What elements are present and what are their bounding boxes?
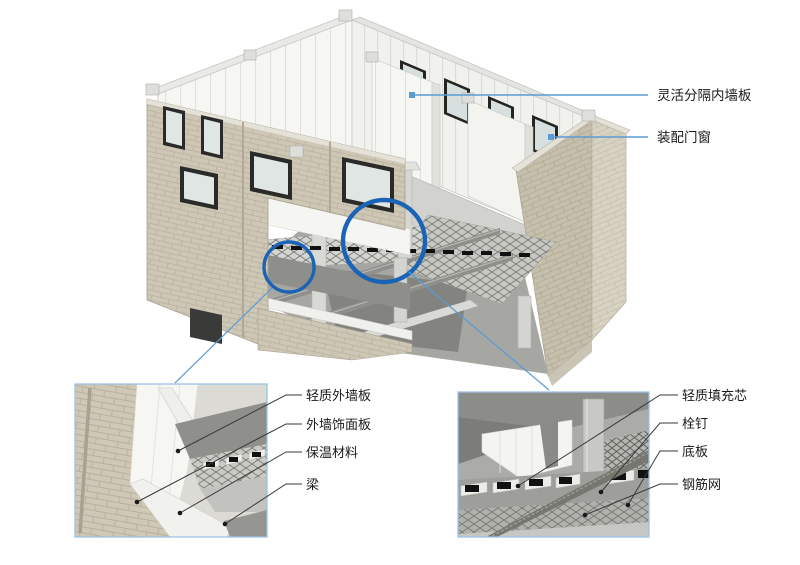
right-detail-view bbox=[458, 392, 649, 537]
label-steel-mesh: 钢筋网 bbox=[682, 477, 721, 492]
left-detail-view bbox=[75, 384, 267, 537]
label-shear-stud: 栓钉 bbox=[682, 416, 708, 431]
label-insulation-material: 保温材料 bbox=[306, 445, 358, 460]
label-assembled-doors-windows: 装配门窗 bbox=[657, 130, 711, 145]
label-beam: 梁 bbox=[306, 477, 319, 492]
facade-window bbox=[201, 115, 223, 159]
label-lightweight-exterior-panel: 轻质外墙板 bbox=[306, 388, 371, 403]
label-lightweight-filling-core: 轻质填充芯 bbox=[682, 388, 747, 403]
assembly-illustration bbox=[0, 0, 800, 565]
label-flexible-partition-panel: 灵活分隔内墙板 bbox=[657, 88, 752, 103]
label-bottom-plate: 底板 bbox=[682, 444, 708, 459]
diagram-canvas: 灵活分隔内墙板 装配门窗 轻质外墙板 外墙饰面板 保温材料 梁 轻质填充芯 栓钉… bbox=[0, 0, 800, 565]
label-exterior-finish-panel: 外墙饰面板 bbox=[306, 417, 371, 432]
facade-window bbox=[163, 106, 185, 150]
